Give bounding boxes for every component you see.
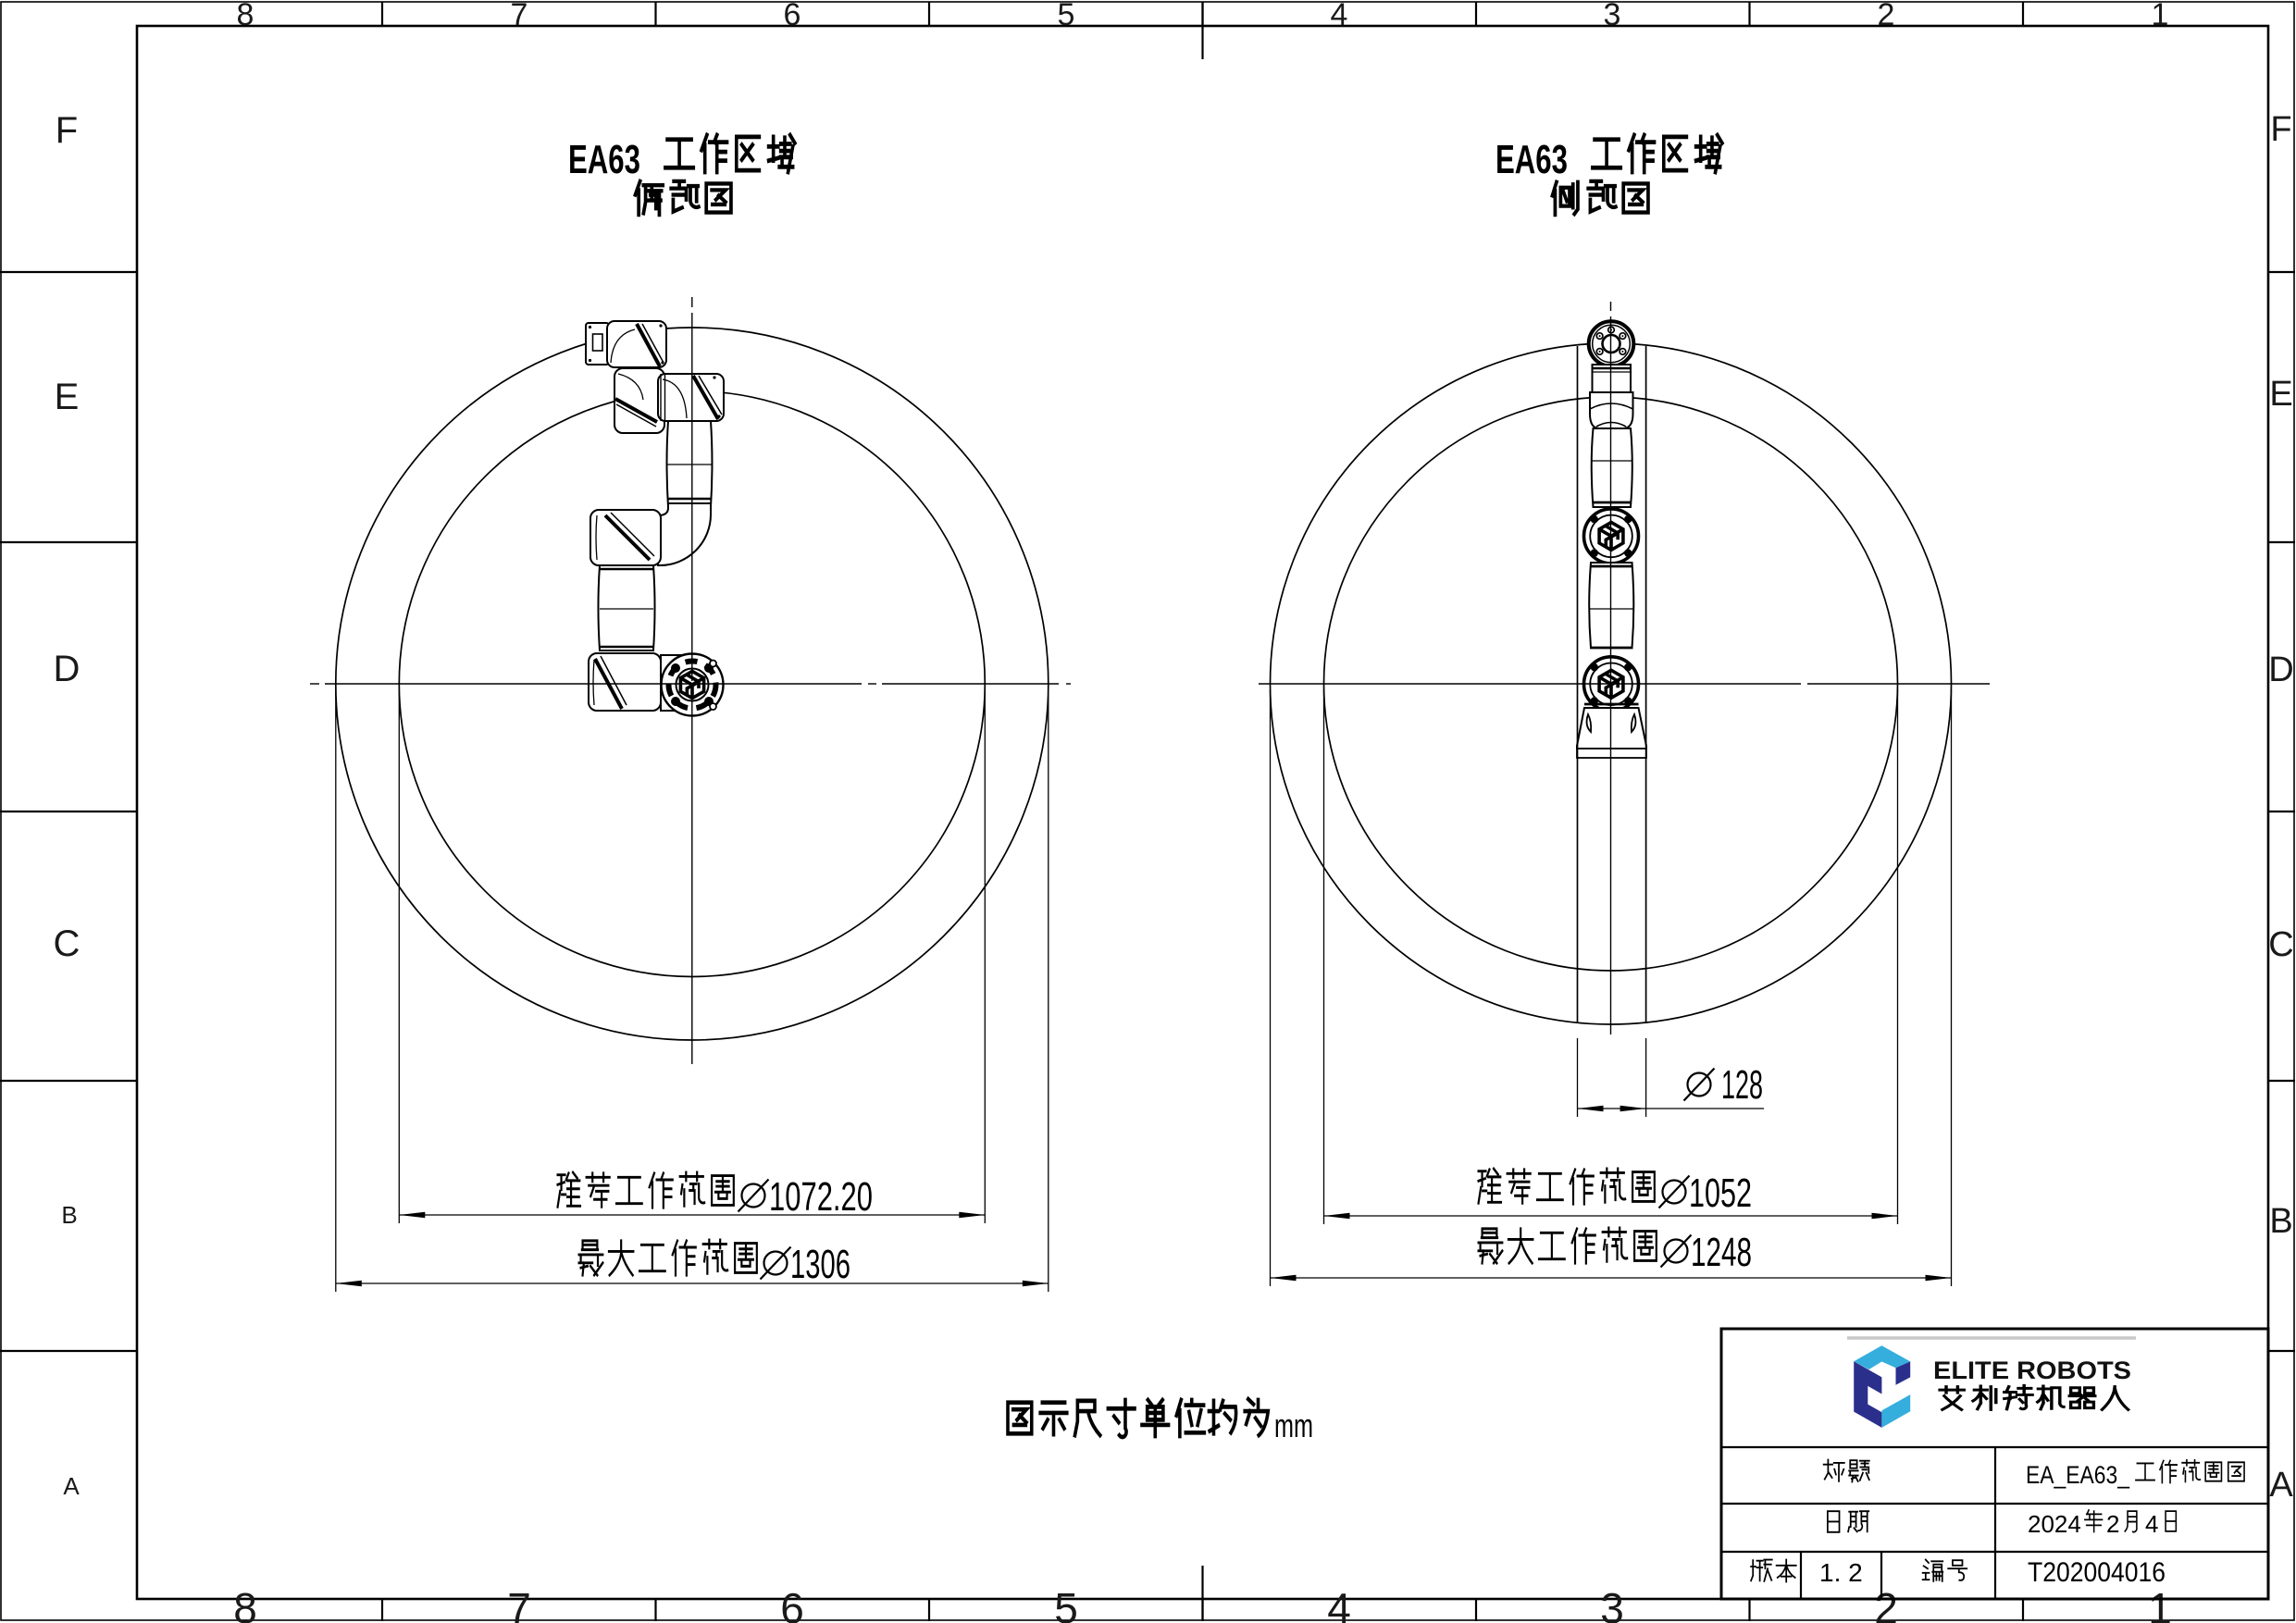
svg-text:1: 1 [2152,0,2169,32]
svg-text:3: 3 [1600,1584,1624,1623]
svg-text:D: D [2268,650,2293,689]
svg-text:2: 2 [2106,1510,2119,1538]
svg-text:2: 2 [1874,1584,1898,1623]
svg-text:4: 4 [2145,1510,2158,1538]
svg-text:1. 2: 1. 2 [1819,1558,1863,1587]
svg-text:7: 7 [511,0,528,32]
svg-text:A: A [63,1472,80,1500]
svg-text:F: F [56,110,78,151]
svg-text:1248: 1248 [1691,1230,1752,1275]
svg-text:EA63: EA63 [1496,137,1568,182]
svg-text:D: D [54,649,81,689]
svg-text:C: C [2268,925,2293,964]
svg-text:128: 128 [1721,1062,1763,1108]
svg-text:7: 7 [507,1584,531,1623]
svg-text:6: 6 [780,1584,804,1623]
svg-text:5: 5 [1058,0,1075,32]
svg-text:4: 4 [1327,1584,1351,1623]
svg-text:2024: 2024 [2028,1510,2081,1538]
svg-text:1072.20: 1072.20 [769,1174,873,1220]
svg-text:6: 6 [784,0,801,32]
svg-text:1052: 1052 [1689,1171,1752,1216]
svg-text:T202004016: T202004016 [2028,1557,2166,1588]
svg-text:3: 3 [1604,0,1621,32]
svg-text:8: 8 [233,1584,257,1623]
svg-text:1306: 1306 [790,1242,850,1287]
svg-text:B: B [2269,1202,2292,1241]
svg-text:2: 2 [1878,0,1895,32]
svg-text:mm: mm [1274,1406,1313,1444]
svg-text:8: 8 [237,0,254,32]
svg-text:E: E [55,377,80,417]
svg-text:EA63: EA63 [568,137,640,182]
svg-text:4: 4 [1331,0,1348,32]
svg-text:B: B [61,1201,77,1229]
svg-text:C: C [54,923,81,964]
svg-text:1: 1 [2148,1584,2172,1623]
svg-text:5: 5 [1054,1584,1078,1623]
svg-text:ELITE ROBOTS: ELITE ROBOTS [1933,1357,2131,1384]
svg-text:EA_EA63_: EA_EA63_ [2026,1461,2130,1489]
svg-text:A: A [2269,1466,2293,1505]
svg-text:F: F [2270,110,2291,149]
svg-text:E: E [2269,375,2292,414]
